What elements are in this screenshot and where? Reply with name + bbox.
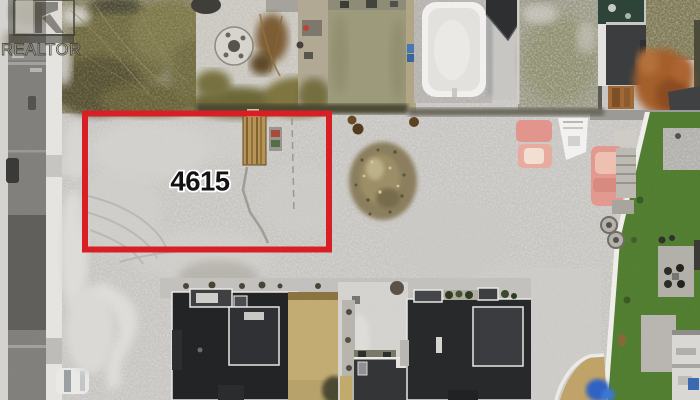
svg-text:4615: 4615 [170,166,229,197]
svg-text:REALTOR: REALTOR [1,41,82,59]
